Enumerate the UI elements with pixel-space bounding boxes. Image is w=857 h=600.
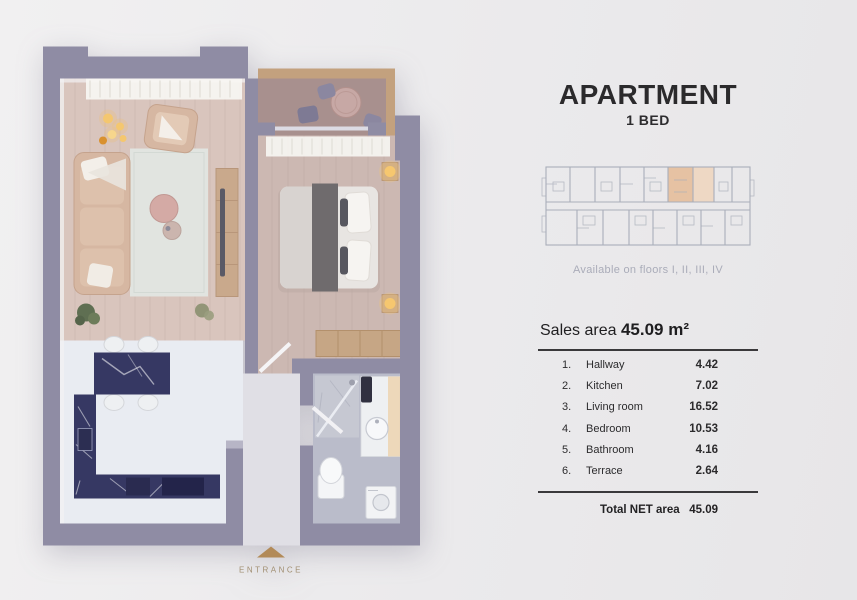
entrance-label: ENTRANCE: [239, 566, 303, 575]
terrace-frame: [258, 69, 395, 79]
page-subtitle: 1 BED: [538, 112, 758, 128]
room-name: Living room: [586, 401, 689, 413]
room-area: 4.42: [696, 359, 718, 371]
room-area: 16.52: [689, 401, 718, 413]
room-area: 4.16: [696, 444, 718, 456]
room-number: 6.: [562, 465, 586, 477]
room-name: Kitchen: [586, 380, 696, 392]
page-title: APARTMENT: [538, 80, 758, 109]
entrance-arrow-icon: [257, 547, 285, 558]
table-row: 2. Kitchen 7.02: [538, 376, 758, 397]
room-area: 7.02: [696, 380, 718, 392]
room-area: 10.53: [689, 423, 718, 435]
apartment-floorplan: ENTRANCE: [30, 38, 460, 588]
pillow: [345, 240, 372, 282]
room-number: 1.: [562, 359, 586, 371]
highlighted-unit: [668, 167, 693, 202]
shower-head-icon: [349, 380, 355, 386]
total-net-area-label: Total NET area: [600, 504, 689, 516]
room-name: Bathroom: [586, 444, 696, 456]
total-row: Total NET area 45.09: [538, 496, 758, 516]
washing-machine: [366, 487, 396, 519]
availability-text: Available on floors I, II, III, IV: [538, 264, 758, 276]
pillow: [345, 192, 372, 234]
oven: [126, 478, 150, 496]
table-row: 1. Hallway 4.42: [538, 354, 758, 375]
total-net-area-value: 45.09: [689, 504, 718, 516]
armchair: [143, 103, 199, 154]
dining-table: [94, 353, 170, 395]
bedside-lamp-icon: [385, 166, 396, 177]
divider: [538, 491, 758, 493]
vanity-sink: [361, 377, 400, 457]
table-row: 6. Terrace 2.64: [538, 460, 758, 481]
kitchen-sink: [78, 429, 92, 451]
divider: [538, 349, 758, 351]
table-row: 4. Bedroom 10.53: [538, 418, 758, 439]
hallway-floor: [243, 374, 300, 546]
rooms-table: 1. Hallway 4.42 2. Kitchen 7.02 3. Livin…: [538, 354, 758, 481]
mirror: [361, 377, 372, 403]
brochure-page: { "page": { "title": "APARTMENT", "subti…: [0, 0, 857, 600]
stove: [162, 478, 204, 496]
sales-area-label: Sales area: [540, 322, 617, 339]
bed-runner: [312, 184, 338, 292]
toilet: [318, 458, 344, 499]
bedside-lamp-icon: [385, 298, 396, 309]
room-number: 4.: [562, 423, 586, 435]
schematic-outline: [546, 167, 750, 245]
building-schematic: [541, 158, 755, 254]
schematic-details: [542, 178, 754, 232]
room-number: 2.: [562, 380, 586, 392]
table-row: 5. Bathroom 4.16: [538, 439, 758, 460]
room-name: Hallway: [586, 359, 696, 371]
bed: [278, 184, 380, 293]
room-area: 2.64: [696, 465, 718, 477]
room-name: Bedroom: [586, 423, 689, 435]
tv-sideboard: [216, 169, 238, 297]
sales-area-line: Sales area 45.09 m²: [538, 320, 758, 340]
sales-area-value: 45.09 m²: [621, 320, 689, 339]
room-number: 3.: [562, 401, 586, 413]
room-number: 5.: [562, 444, 586, 456]
sofa: [74, 153, 130, 295]
info-panel: APARTMENT 1 BED: [538, 80, 758, 516]
entrance: ENTRANCE: [239, 547, 303, 575]
wardrobe: [316, 331, 402, 357]
table-row: 3. Living room 16.52: [538, 397, 758, 418]
room-name: Terrace: [586, 465, 696, 477]
